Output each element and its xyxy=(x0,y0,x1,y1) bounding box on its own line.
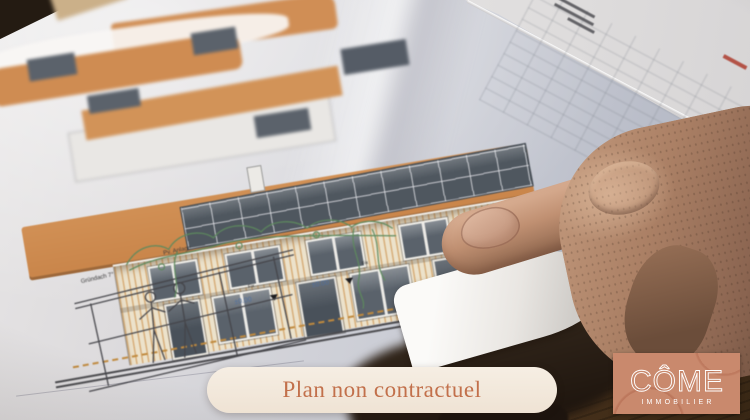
window xyxy=(340,39,409,75)
caption-text: Plan non contractuel xyxy=(282,377,481,403)
logo-subtitle: IMMOBILIER xyxy=(638,399,714,406)
roof-vent xyxy=(246,165,265,193)
logo-brand-text: CÔME xyxy=(630,364,724,398)
caption-banner: Plan non contractuel xyxy=(207,367,557,413)
brand-logo: CÔME IMMOBILIER xyxy=(613,353,740,414)
logo-brand-mark: CÔME xyxy=(620,362,734,398)
photo-frame: Pv. Anlage Fix Fix Gründach 7° ±0.00 ±0.… xyxy=(0,0,750,420)
